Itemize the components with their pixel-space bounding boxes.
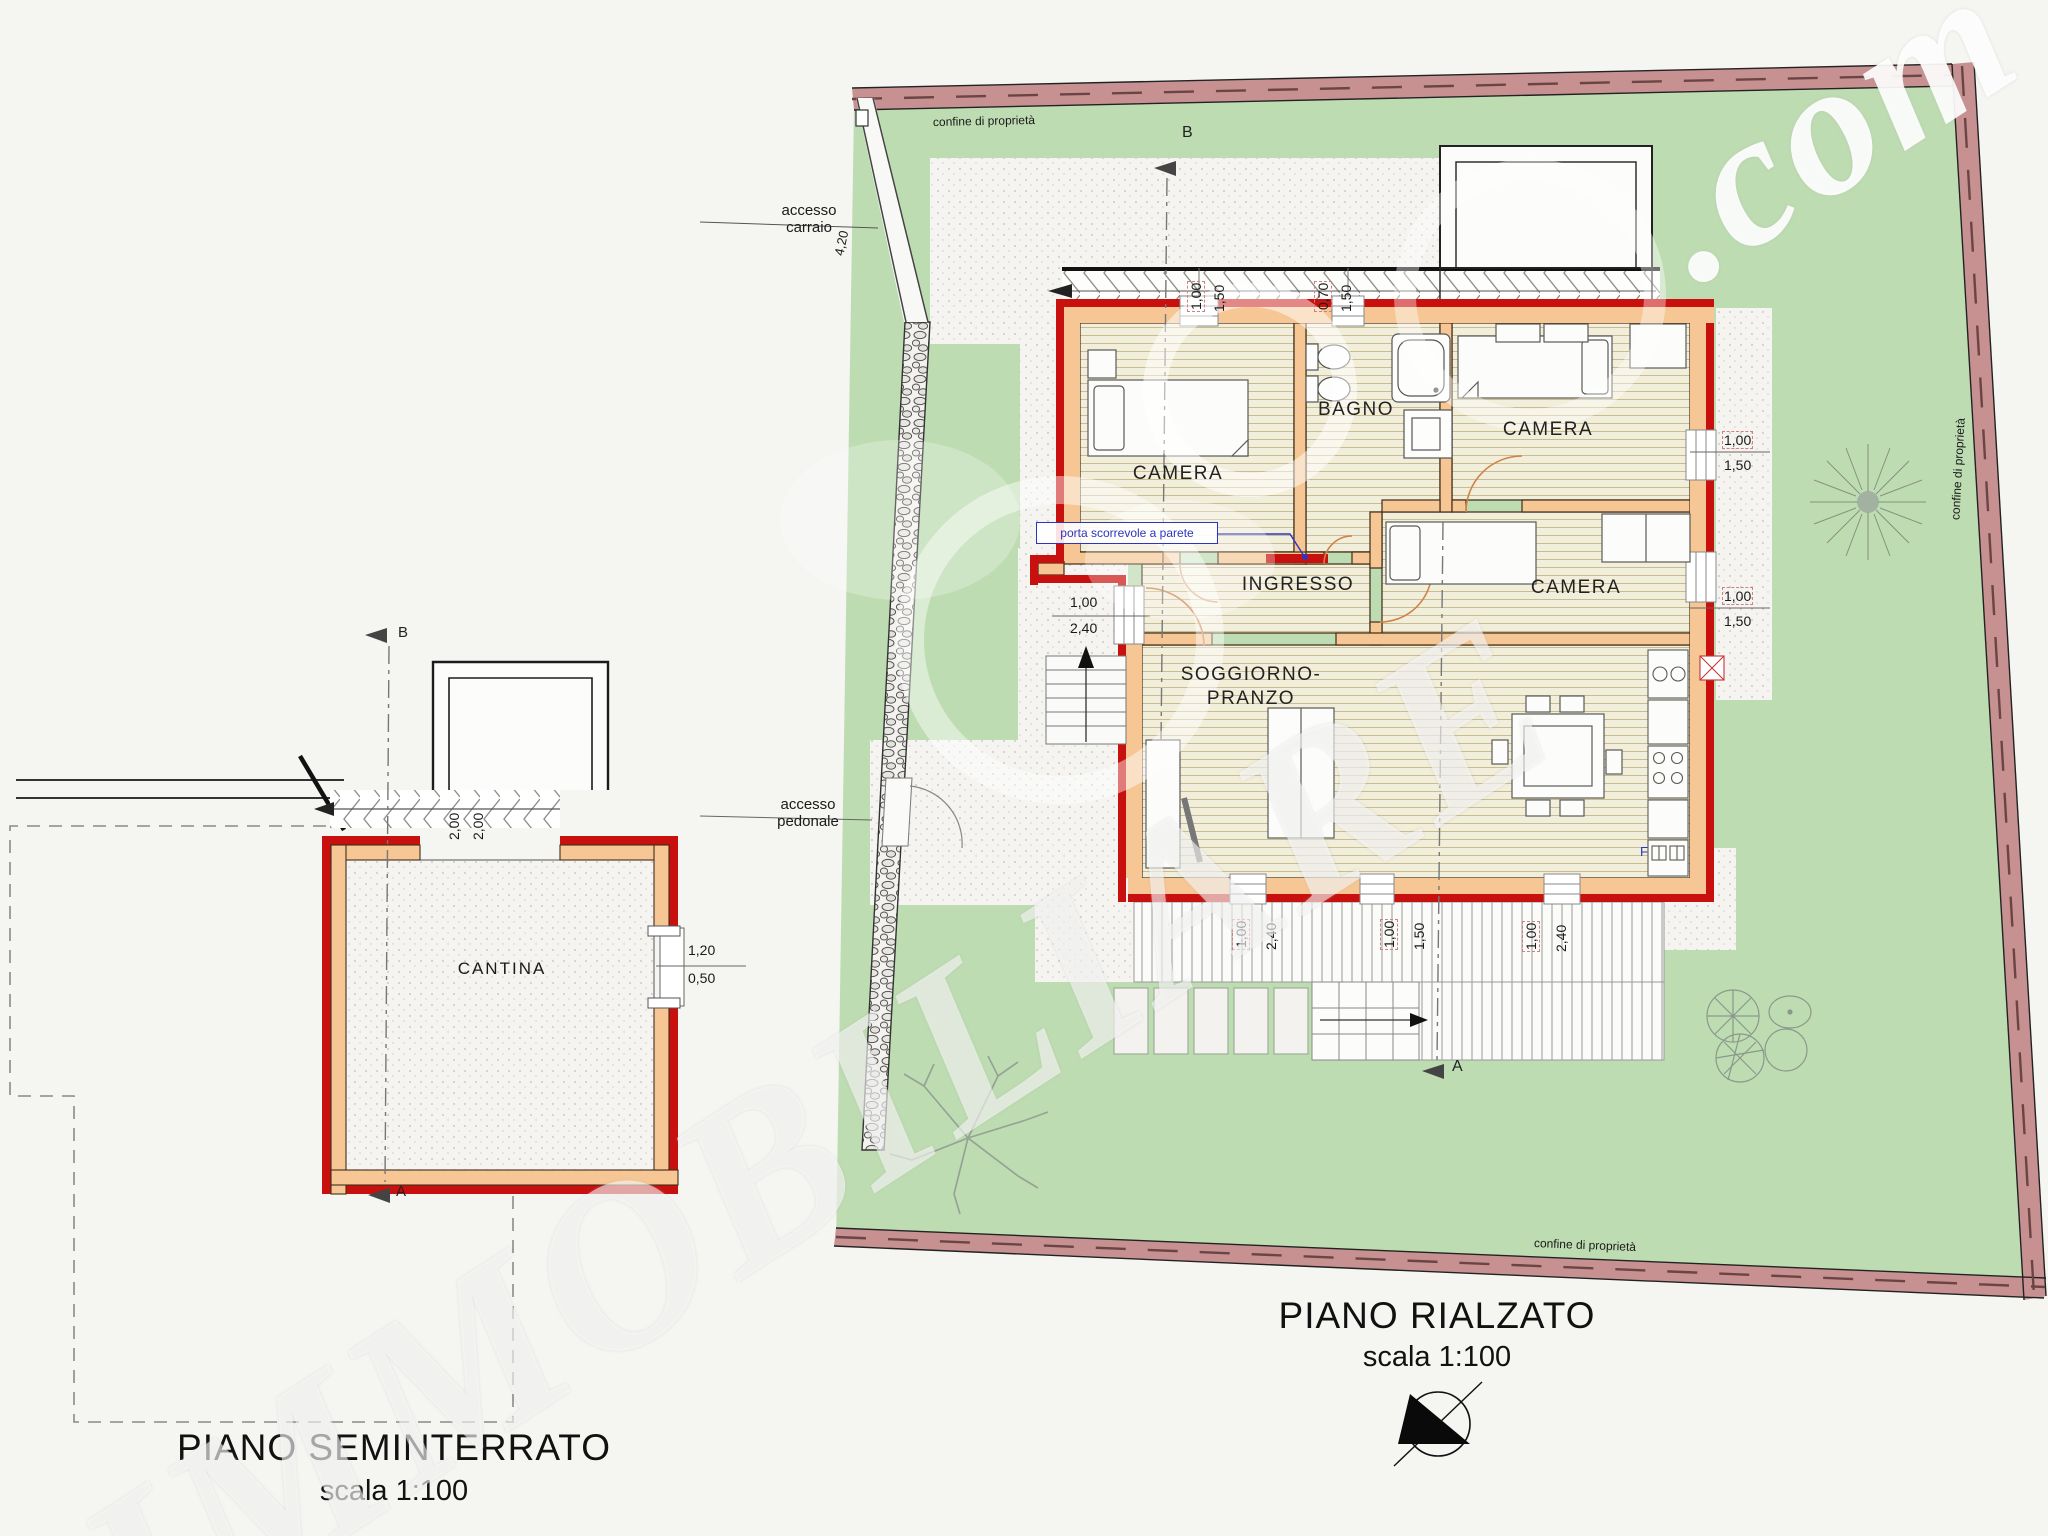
title-rialzato: PIANO RIALZATO <box>1187 1295 1687 1337</box>
seminterrato-garage <box>433 662 608 790</box>
dim-s1a: 1,00 <box>1234 904 1249 950</box>
dim-s2a: 1,00 <box>1382 904 1397 950</box>
room-label-soggiorno-2: PRANZO <box>1171 688 1331 710</box>
room-label-camera2: CAMERA <box>1480 419 1616 441</box>
dim-n2b: 1,50 <box>1339 266 1354 312</box>
sem-marker-b: B <box>398 624 408 641</box>
title-seminterrato: PIANO SEMINTERRATO <box>94 1427 694 1469</box>
boiler-icon <box>1700 656 1724 680</box>
room-label-soggiorno-1: SOGGIORNO- <box>1171 664 1331 686</box>
room-label-cantina: CANTINA <box>437 959 567 979</box>
accesso-pedonale-line1: accesso <box>760 796 856 813</box>
dim-e1b: 1,50 <box>1724 457 1751 473</box>
dim-cantina-win-a: 1,20 <box>688 942 715 958</box>
dim-n1b: 1,50 <box>1212 266 1227 312</box>
dim-e2b: 1,50 <box>1724 613 1751 629</box>
dim-w1a: 1,00 <box>1070 594 1097 610</box>
room-label-bagno: BAGNO <box>1298 399 1414 421</box>
dim-n2a-value: 0,70 <box>1314 281 1332 312</box>
confine-top-label: confine di proprietà <box>918 113 1050 130</box>
entry-stairs <box>1046 646 1126 744</box>
tree-starburst <box>1810 444 1926 560</box>
north-compass-icon <box>1394 1382 1482 1466</box>
dim-s3a-value: 1,00 <box>1522 921 1540 952</box>
dim-s2b: 1,50 <box>1412 904 1427 950</box>
dim-n1a: 1,00 <box>1189 266 1204 312</box>
sem-marker-a: A <box>396 1183 406 1200</box>
section-marker-a: A <box>1452 1058 1463 1076</box>
seminterrato-ramp <box>314 790 560 828</box>
dim-s2a-value: 1,00 <box>1380 919 1398 950</box>
scale-rialzato: scala 1:100 <box>1187 1341 1687 1374</box>
stepping-stones <box>1114 988 1308 1054</box>
room-label-camera3: CAMERA <box>1508 577 1644 599</box>
plan-drawing <box>0 0 2048 1536</box>
dim-s3b: 2,40 <box>1554 906 1569 952</box>
floorplan-sheet: confine di proprietà confine di propriet… <box>0 0 2048 1536</box>
dim-s1b: 2,40 <box>1264 904 1279 950</box>
dim-e1a: 1,00 <box>1722 432 1753 448</box>
dim-s1a-value: 1,00 <box>1232 919 1250 950</box>
scale-seminterrato: scala 1:100 <box>94 1475 694 1508</box>
section-marker-b: B <box>1182 124 1193 142</box>
dim-ramp-a: 2,00 <box>447 794 462 840</box>
sliding-door-note: porta scorrevole a parete <box>1036 522 1218 544</box>
cantina-walls <box>322 836 746 1194</box>
dim-s3a: 1,00 <box>1524 906 1539 952</box>
accesso-pedonale-label: accesso pedonale <box>760 796 856 831</box>
dim-ramp-b: 2,00 <box>471 794 486 840</box>
dim-n1a-value: 1,00 <box>1187 281 1205 312</box>
dim-e2a: 1,00 <box>1722 588 1753 604</box>
room-label-ingresso: INGRESSO <box>1230 574 1366 596</box>
accesso-pedonale-line2: pedonale <box>760 813 856 830</box>
dim-cantina-win-b: 0,50 <box>688 970 715 986</box>
dim-e2a-value: 1,00 <box>1722 587 1753 605</box>
dim-e1a-value: 1,00 <box>1722 431 1753 449</box>
dim-w1b: 2,40 <box>1070 620 1097 636</box>
dim-n2a: 0,70 <box>1316 266 1331 312</box>
room-label-camera1: CAMERA <box>1110 463 1246 485</box>
kitchen-f-mark: F <box>1640 844 1648 859</box>
